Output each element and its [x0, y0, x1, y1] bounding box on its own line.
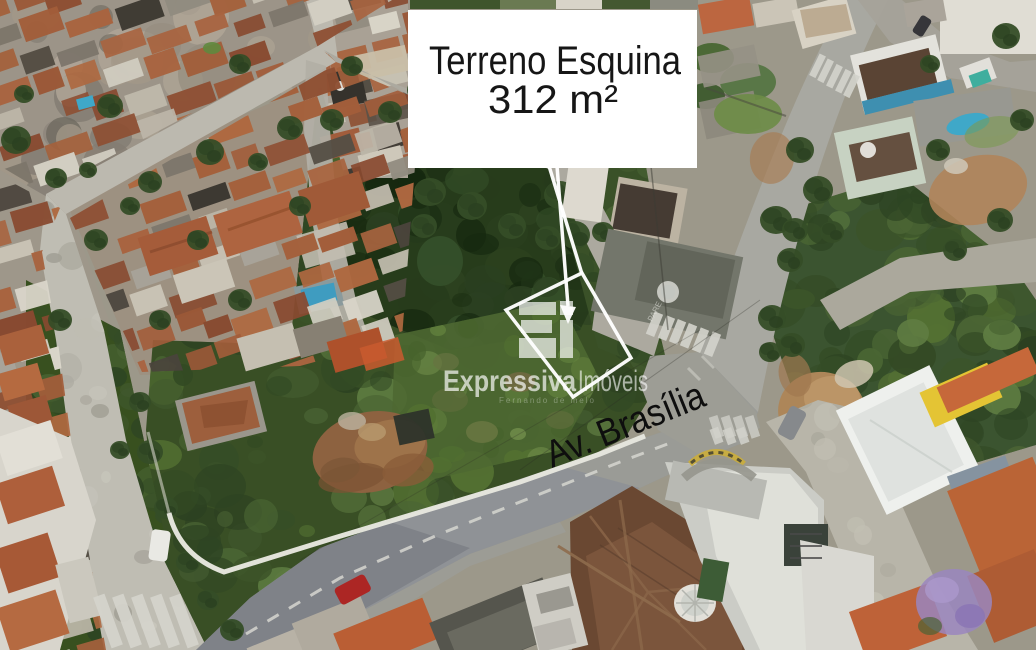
svg-text:Expressiva: Expressiva: [443, 365, 576, 398]
svg-text:Imóveis: Imóveis: [578, 365, 648, 398]
svg-text:Fernando de melo: Fernando de melo: [499, 396, 596, 405]
svg-text:Terreno Esquina: Terreno Esquina: [429, 39, 682, 83]
svg-text:312 m²: 312 m²: [488, 78, 618, 122]
